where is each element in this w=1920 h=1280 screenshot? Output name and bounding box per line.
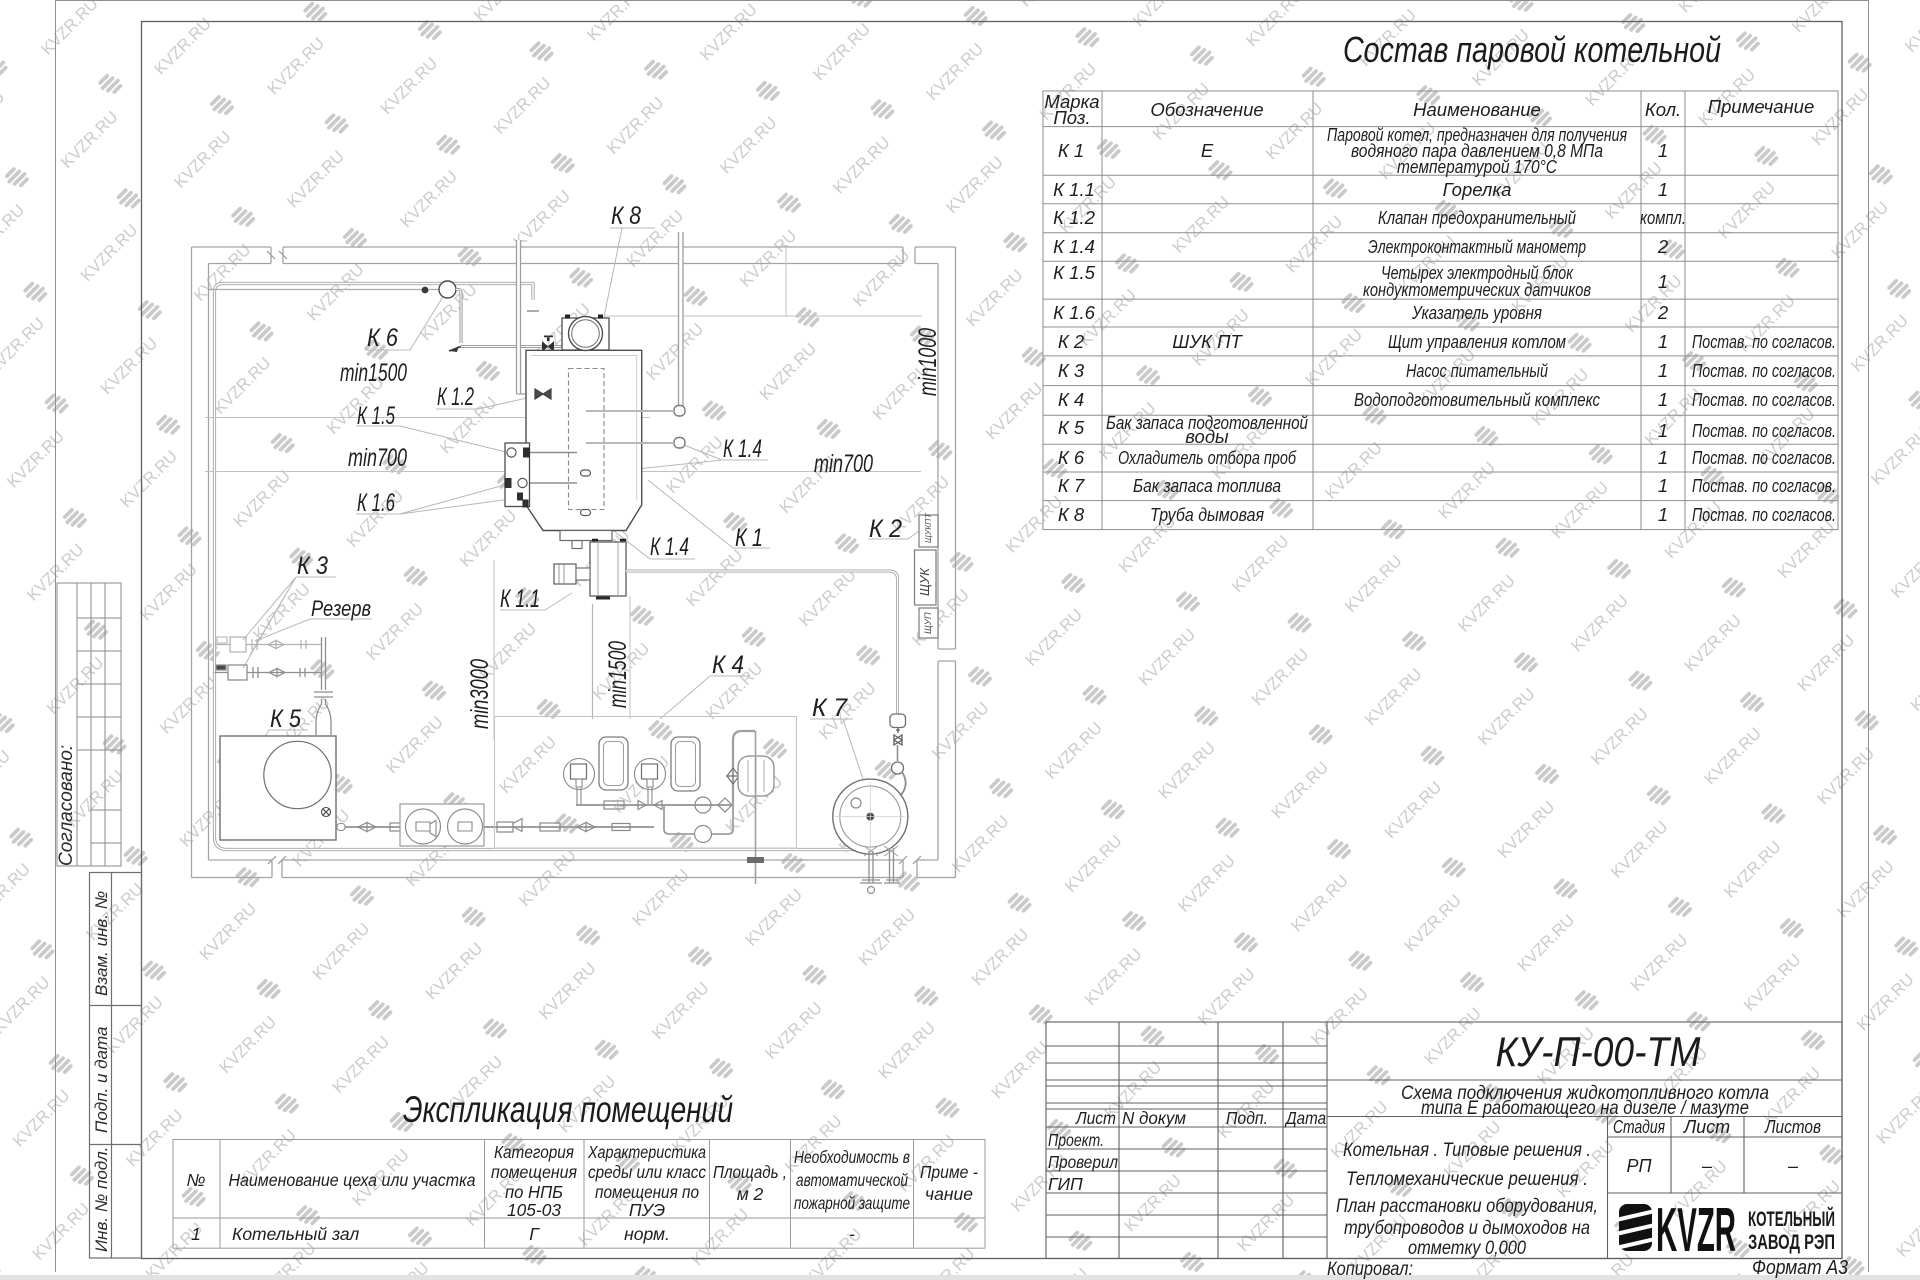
svg-text:Указатель уровня: Указатель уровня (1411, 302, 1542, 323)
svg-text:1: 1 (1658, 504, 1668, 525)
svg-text:Поз.: Поз. (1053, 107, 1090, 128)
svg-text:Лист: Лист (1075, 1108, 1116, 1128)
svg-text:КОТЕЛЬНЫЙ: КОТЕЛЬНЫЙ (1748, 1207, 1835, 1231)
svg-text:Стадия: Стадия (1613, 1117, 1665, 1137)
svg-text:Е: Е (1201, 140, 1214, 161)
svg-text:РП: РП (1626, 1156, 1652, 1176)
svg-text:1: 1 (1658, 331, 1668, 352)
svg-text:К 7: К 7 (1058, 475, 1085, 496)
svg-text:-: - (849, 1224, 855, 1244)
svg-text:К 6: К 6 (367, 324, 398, 352)
svg-text:Постав. по согласов.: Постав. по согласов. (1692, 389, 1836, 410)
svg-text:Подп.: Подп. (1226, 1108, 1268, 1128)
svg-text:воды: воды (1185, 426, 1229, 447)
svg-text:Согласовано:: Согласовано: (56, 745, 77, 866)
svg-text:Наименование цеха или участка: Наименование цеха или участка (229, 1170, 476, 1190)
svg-text:Листов: Листов (1764, 1117, 1821, 1137)
svg-text:типа Е работающего на дизеле /: типа Е работающего на дизеле / мазуте (1421, 1097, 1749, 1119)
svg-text:1: 1 (1658, 271, 1668, 292)
svg-text:Проверил: Проверил (1048, 1152, 1118, 1172)
svg-text:ПУЭ: ПУЭ (629, 1200, 665, 1220)
svg-text:помещения: помещения (491, 1162, 577, 1182)
svg-text:К 4: К 4 (712, 651, 744, 679)
svg-text:1: 1 (1658, 420, 1668, 441)
svg-text:Постав. по согласов.: Постав. по согласов. (1692, 447, 1836, 468)
svg-text:Котельный зал: Котельный зал (232, 1224, 359, 1244)
svg-text:кондуктометрических датчиков: кондуктометрических датчиков (1363, 279, 1591, 300)
svg-text:помещения по: помещения по (595, 1182, 699, 1202)
svg-text:Охладитель отбора проб: Охладитель отбора проб (1118, 447, 1296, 468)
svg-text:Постав. по согласов.: Постав. по согласов. (1692, 331, 1836, 352)
svg-text:К 1.4: К 1.4 (723, 435, 762, 463)
svg-text:1: 1 (1658, 475, 1668, 496)
svg-text:норм.: норм. (624, 1224, 670, 1244)
svg-text:ЩУП: ЩУП (923, 612, 934, 634)
svg-text:Необходимость в: Необходимость в (794, 1147, 910, 1167)
svg-text:К 1.6: К 1.6 (1053, 302, 1095, 323)
svg-text:К 2: К 2 (1058, 331, 1085, 352)
svg-text:температурой 170°С: температурой 170°С (1397, 156, 1558, 177)
svg-text:Проект.: Проект. (1048, 1130, 1104, 1150)
svg-text:Насос питательный: Насос питательный (1406, 360, 1548, 381)
svg-text:Взам. инв. №: Взам. инв. № (92, 891, 111, 996)
svg-text:ШУК ПТ: ШУК ПТ (1172, 331, 1243, 352)
svg-text:К 5: К 5 (1058, 417, 1085, 438)
svg-text:KVZR: KVZR (1656, 1196, 1736, 1265)
svg-text:Постав. по согласов.: Постав. по согласов. (1692, 504, 1836, 525)
svg-text:К 8: К 8 (611, 202, 641, 230)
svg-text:Водоподготовительный комплекс: Водоподготовительный комплекс (1354, 389, 1601, 410)
svg-text:К 3: К 3 (1058, 360, 1085, 381)
svg-text:ЩУКПТ: ЩУКПТ (923, 513, 933, 543)
svg-text:Приме -: Приме - (920, 1162, 978, 1182)
svg-text:К 6: К 6 (1058, 447, 1085, 468)
svg-text:отметку 0,000: отметку 0,000 (1408, 1237, 1526, 1259)
svg-text:К 1.5: К 1.5 (1053, 262, 1095, 283)
svg-text:ЩУК: ЩУК (917, 567, 932, 596)
svg-text:min1500: min1500 (604, 641, 632, 708)
svg-text:Котельная . Типовые решения .: Котельная . Типовые решения . (1343, 1139, 1591, 1161)
svg-text:ГИП: ГИП (1048, 1174, 1083, 1194)
svg-text:К 1.5: К 1.5 (357, 402, 395, 430)
svg-text:min700: min700 (348, 444, 407, 472)
svg-text:Экспликация помещений: Экспликация помещений (403, 1089, 733, 1130)
svg-text:Копировал:: Копировал: (1327, 1259, 1413, 1280)
svg-text:Формат А3: Формат А3 (1752, 1257, 1848, 1279)
svg-text:чание: чание (925, 1184, 973, 1204)
svg-text:№: № (187, 1170, 206, 1190)
svg-text:К 1.2: К 1.2 (1053, 207, 1095, 228)
svg-text:К 3: К 3 (297, 552, 328, 580)
svg-text:Категория: Категория (494, 1142, 574, 1162)
svg-text:Состав паровой котельной: Состав паровой котельной (1343, 29, 1721, 70)
svg-text:min1500: min1500 (340, 359, 407, 387)
svg-text:–: – (1787, 1156, 1799, 1176)
svg-text:К 5: К 5 (270, 705, 301, 733)
svg-text:К 1.4: К 1.4 (650, 533, 689, 561)
svg-text:Постав. по согласов.: Постав. по согласов. (1692, 360, 1836, 381)
svg-text:Клапан предохранительный: Клапан предохранительный (1378, 207, 1576, 228)
svg-text:2: 2 (1657, 236, 1669, 257)
svg-text:1: 1 (1658, 360, 1668, 381)
svg-text:Дата: Дата (1284, 1108, 1326, 1128)
svg-text:К 1.1: К 1.1 (500, 585, 540, 613)
svg-text:компл.: компл. (1640, 207, 1686, 228)
svg-text:–: – (1701, 1156, 1713, 1176)
svg-text:м 2: м 2 (737, 1184, 764, 1204)
svg-text:трубопроводов и дымоходов на: трубопроводов и дымоходов на (1344, 1217, 1590, 1239)
svg-text:Наименование: Наименование (1413, 99, 1541, 120)
svg-text:Кол.: Кол. (1645, 99, 1681, 120)
svg-text:min1000: min1000 (914, 328, 942, 396)
svg-text:Примечание: Примечание (1708, 96, 1815, 117)
svg-text:Обозначение: Обозначение (1150, 99, 1263, 120)
svg-text:по НПБ: по НПБ (505, 1182, 563, 1202)
svg-text:1: 1 (1658, 179, 1668, 200)
svg-text:среды или класс: среды или класс (588, 1162, 706, 1182)
svg-text:Постав. по согласов.: Постав. по согласов. (1692, 420, 1836, 441)
svg-text:Подп. и дата: Подп. и дата (92, 1027, 111, 1133)
svg-text:К 1.6: К 1.6 (357, 489, 395, 517)
svg-text:Труба дымовая: Труба дымовая (1150, 504, 1264, 525)
svg-text:1: 1 (191, 1224, 201, 1244)
svg-text:К 1.1: К 1.1 (1053, 179, 1095, 200)
svg-text:Лист: Лист (1683, 1117, 1730, 1137)
svg-text:Г: Г (529, 1224, 540, 1244)
svg-text:Характеристика: Характеристика (587, 1142, 706, 1162)
svg-text:1: 1 (1658, 140, 1668, 161)
svg-text:Бак запаса топлива: Бак запаса топлива (1133, 475, 1281, 496)
svg-text:105-03: 105-03 (507, 1200, 561, 1220)
svg-text:2: 2 (1657, 302, 1669, 323)
svg-text:автоматической: автоматической (796, 1170, 908, 1190)
svg-text:Тепломеханические решения .: Тепломеханические решения . (1346, 1168, 1588, 1190)
svg-text:Площадь ,: Площадь , (713, 1162, 787, 1182)
svg-text:К 4: К 4 (1058, 389, 1084, 410)
svg-text:К 7: К 7 (812, 694, 848, 722)
svg-text:N докум: N докум (1122, 1108, 1186, 1128)
svg-text:План расстановки оборудования,: План расстановки оборудования, (1336, 1195, 1598, 1217)
svg-text:КУ-П-00-ТМ: КУ-П-00-ТМ (1496, 1028, 1701, 1075)
svg-text:min700: min700 (814, 450, 873, 478)
svg-text:Электроконтактный манометр: Электроконтактный манометр (1368, 236, 1586, 257)
svg-text:пожарной защите: пожарной защите (794, 1193, 910, 1213)
svg-text:1: 1 (1658, 389, 1668, 410)
svg-text:Инв. № подл.: Инв. № подл. (92, 1147, 111, 1253)
svg-text:К 1: К 1 (735, 524, 763, 552)
svg-text:К 8: К 8 (1058, 504, 1085, 525)
svg-text:ЗАВОД РЭП: ЗАВОД РЭП (1748, 1231, 1835, 1254)
svg-text:К 1.4: К 1.4 (1053, 236, 1095, 257)
svg-text:1: 1 (1658, 447, 1668, 468)
svg-text:min3000: min3000 (466, 659, 494, 729)
svg-text:К 2: К 2 (869, 515, 902, 543)
svg-text:Постав. по согласов.: Постав. по согласов. (1692, 475, 1836, 496)
svg-text:Щит управления котлом: Щит управления котлом (1388, 331, 1566, 352)
svg-text:Резерв: Резерв (311, 596, 371, 621)
svg-text:К 1: К 1 (1058, 140, 1084, 161)
svg-text:Горелка: Горелка (1443, 179, 1512, 200)
svg-text:К 1.2: К 1.2 (437, 383, 474, 411)
